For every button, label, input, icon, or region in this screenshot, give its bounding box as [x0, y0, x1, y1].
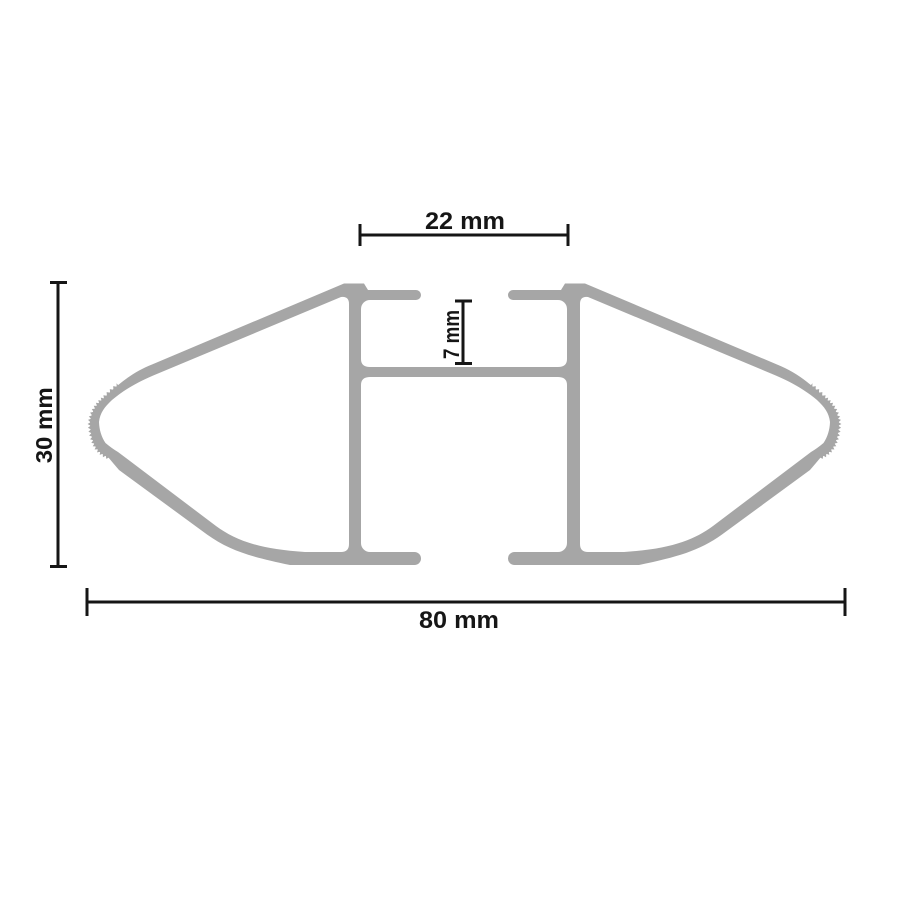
svg-text:7 mm: 7 mm: [439, 310, 464, 359]
svg-text:80 mm: 80 mm: [419, 607, 499, 634]
svg-text:22 mm: 22 mm: [425, 208, 505, 235]
svg-text:30 mm: 30 mm: [31, 387, 57, 463]
